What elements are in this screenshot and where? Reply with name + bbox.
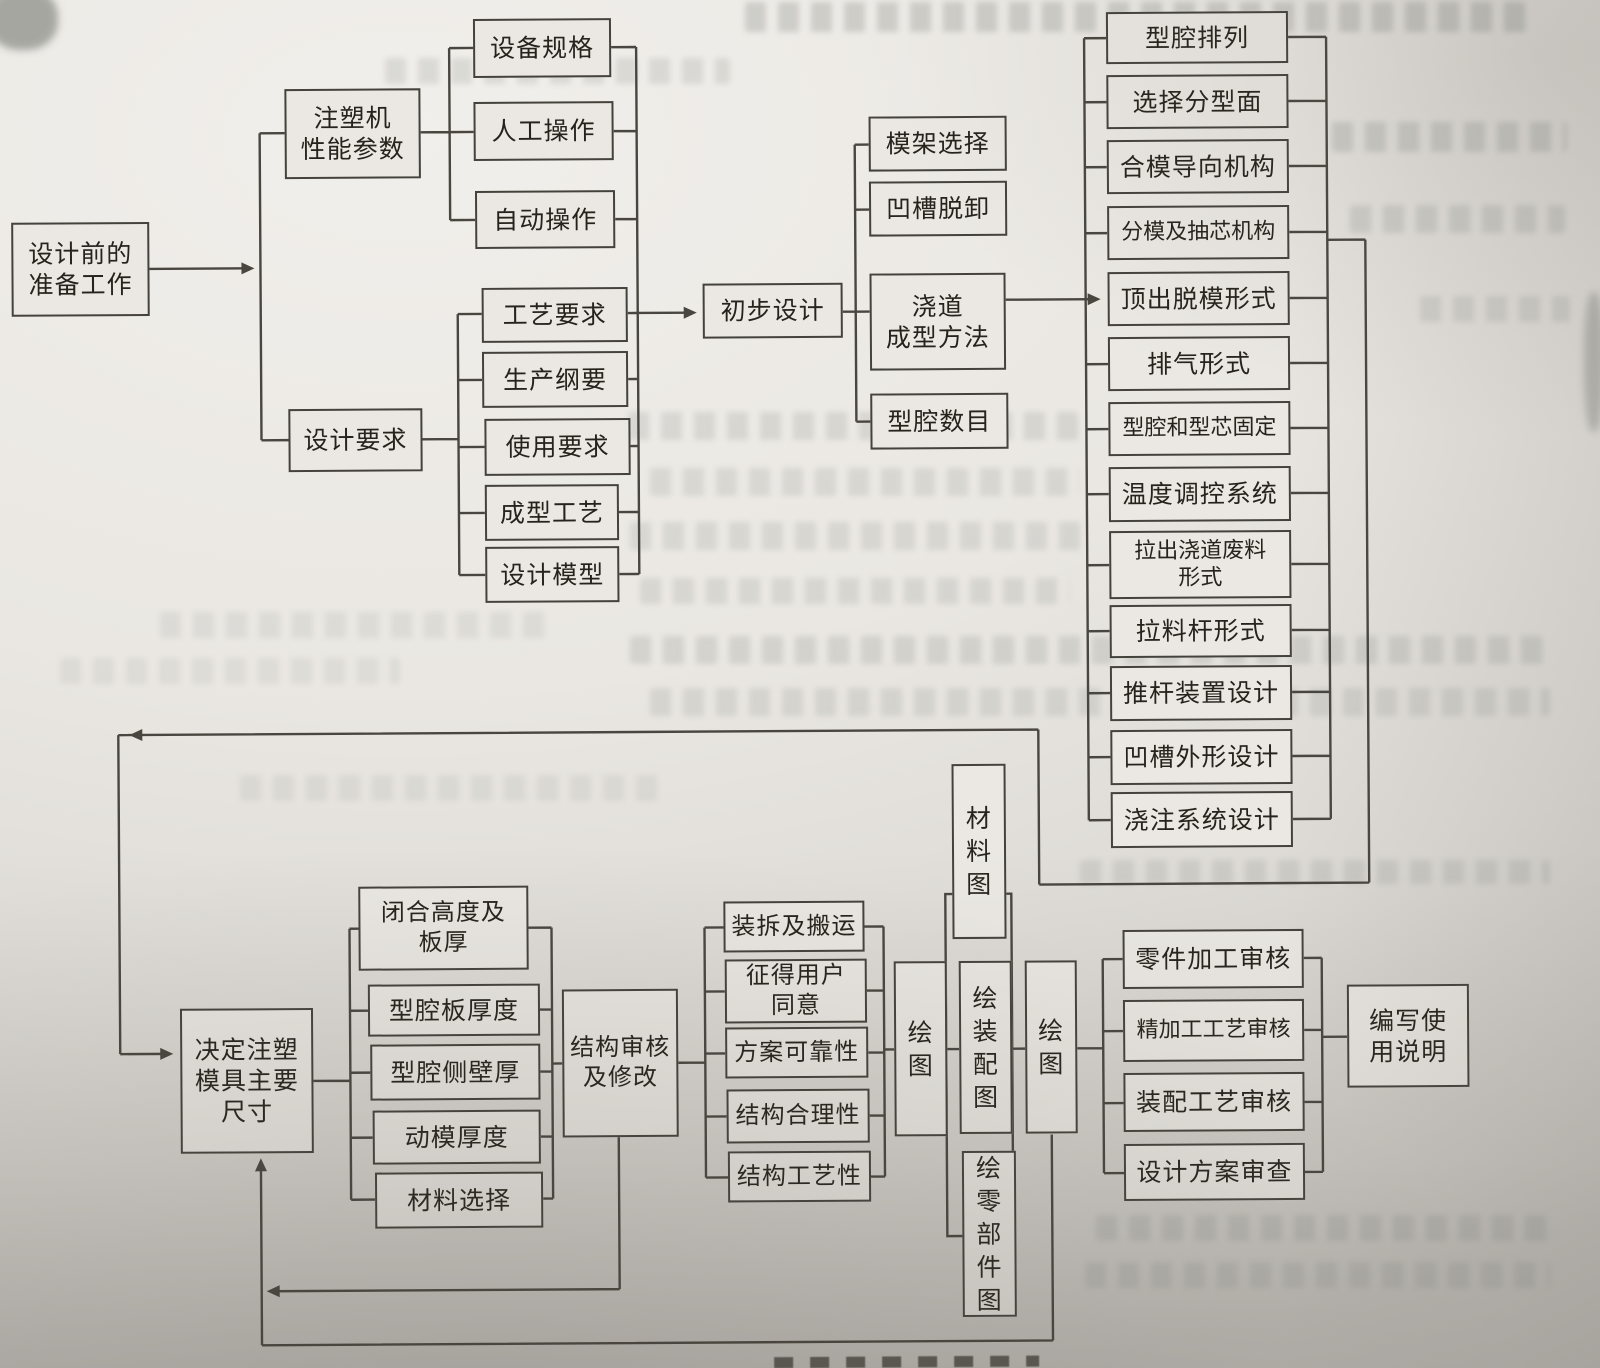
node-ejector-device: 推杆装置设计 bbox=[1110, 665, 1292, 721]
node-material-selection: 材料选择 bbox=[375, 1172, 543, 1229]
node-clamping-guide: 合模导向机构 bbox=[1107, 139, 1289, 194]
node-cavity-plate-thickness: 型腔板厚度 bbox=[368, 984, 540, 1037]
node-process-req: 工艺要求 bbox=[482, 287, 628, 343]
node-temp-control: 温度调控系统 bbox=[1109, 466, 1291, 522]
node-machine-params: 注塑机 性能参数 bbox=[284, 88, 421, 179]
node-parts-machining-review: 零件加工审核 bbox=[1123, 929, 1304, 989]
node-main-dims: 决定注塑 模具主要 尺寸 bbox=[180, 1008, 314, 1154]
node-design-model: 设计模型 bbox=[485, 546, 619, 603]
arrow-right-icon bbox=[684, 307, 697, 319]
node-parting-core-pulling: 分模及抽芯机构 bbox=[1107, 205, 1289, 260]
node-structure-manufacturability: 结构工艺性 bbox=[728, 1151, 871, 1203]
node-groove-profile: 凹槽外形设计 bbox=[1110, 729, 1292, 785]
node-parting-surface: 选择分型面 bbox=[1106, 74, 1288, 129]
node-manual-op: 人工操作 bbox=[473, 101, 613, 161]
node-ejection-form: 顶出脱模形式 bbox=[1107, 271, 1289, 326]
node-material-drawing: 材 料 图 bbox=[951, 764, 1006, 939]
node-plan-reliability: 方案可靠性 bbox=[725, 1027, 868, 1079]
node-finishing-process-review: 精加工工艺审核 bbox=[1123, 999, 1304, 1062]
node-structure-review: 结构审核 及修改 bbox=[562, 989, 679, 1138]
node-parts-drawing: 绘 零 部 件 图 bbox=[962, 1151, 1017, 1317]
node-prep: 设计前的 准备工作 bbox=[11, 222, 150, 317]
node-design-plan-review: 设计方案审查 bbox=[1124, 1143, 1305, 1201]
cropped-caption-fragment bbox=[774, 1356, 1039, 1368]
node-auto-op: 自动操作 bbox=[475, 190, 615, 249]
node-cavity-layout: 型腔排列 bbox=[1106, 11, 1288, 64]
node-cavity-core-fixing: 型腔和型芯固定 bbox=[1108, 401, 1290, 456]
node-cavity-side-wall: 型腔侧壁厚 bbox=[370, 1044, 540, 1101]
node-assembly-process-review: 装配工艺审核 bbox=[1123, 1072, 1304, 1132]
arrow-left-icon bbox=[129, 729, 142, 741]
book-page-photo: 设计前的 准备工作 注塑机 性能参数 设计要求 设备规格 人工操作 自动操作 工… bbox=[0, 0, 1600, 1368]
node-closing-height: 闭合高度及 板厚 bbox=[358, 886, 529, 971]
node-equip-spec: 设备规格 bbox=[473, 18, 611, 78]
node-production-outline: 生产纲要 bbox=[482, 351, 628, 408]
node-venting-form: 排气形式 bbox=[1108, 336, 1290, 391]
arrow-right-icon bbox=[1088, 293, 1101, 305]
node-cavity-count: 型腔数目 bbox=[870, 393, 1008, 450]
node-design-req: 设计要求 bbox=[288, 408, 422, 472]
node-gating-system: 浇注系统设计 bbox=[1111, 791, 1293, 848]
arrow-up-icon bbox=[255, 1158, 267, 1171]
node-puller-rod: 拉料杆形式 bbox=[1110, 604, 1292, 658]
node-runner-waste: 拉出浇道废料 形式 bbox=[1109, 530, 1291, 599]
arrow-left-icon bbox=[267, 1285, 280, 1297]
node-draw-1: 绘 图 bbox=[894, 961, 948, 1136]
node-structure-rationality: 结构合理性 bbox=[726, 1089, 869, 1144]
node-usage-req: 使用要求 bbox=[484, 418, 630, 476]
node-user-consent: 征得用户 同意 bbox=[725, 959, 867, 1024]
node-mold-base: 模架选择 bbox=[869, 116, 1007, 172]
node-draw-2: 绘 图 bbox=[1025, 960, 1078, 1133]
arrow-right-icon bbox=[160, 1048, 173, 1060]
arrow-right-icon bbox=[241, 262, 254, 274]
node-assembly-drawing: 绘 装 配 图 bbox=[959, 961, 1013, 1134]
flowchart: 设计前的 准备工作 注塑机 性能参数 设计要求 设备规格 人工操作 自动操作 工… bbox=[0, 0, 1600, 1368]
node-assembly-transport: 装拆及搬运 bbox=[723, 901, 864, 953]
node-runner-method: 浇道 成型方法 bbox=[869, 273, 1006, 371]
node-molding-process: 成型工艺 bbox=[485, 484, 619, 541]
node-write-manual: 编写使 用说明 bbox=[1347, 984, 1470, 1088]
node-prelim-design: 初步设计 bbox=[703, 283, 843, 339]
node-groove-release: 凹槽脱卸 bbox=[869, 181, 1007, 237]
node-moving-mold-thickness: 动模厚度 bbox=[373, 1110, 541, 1165]
